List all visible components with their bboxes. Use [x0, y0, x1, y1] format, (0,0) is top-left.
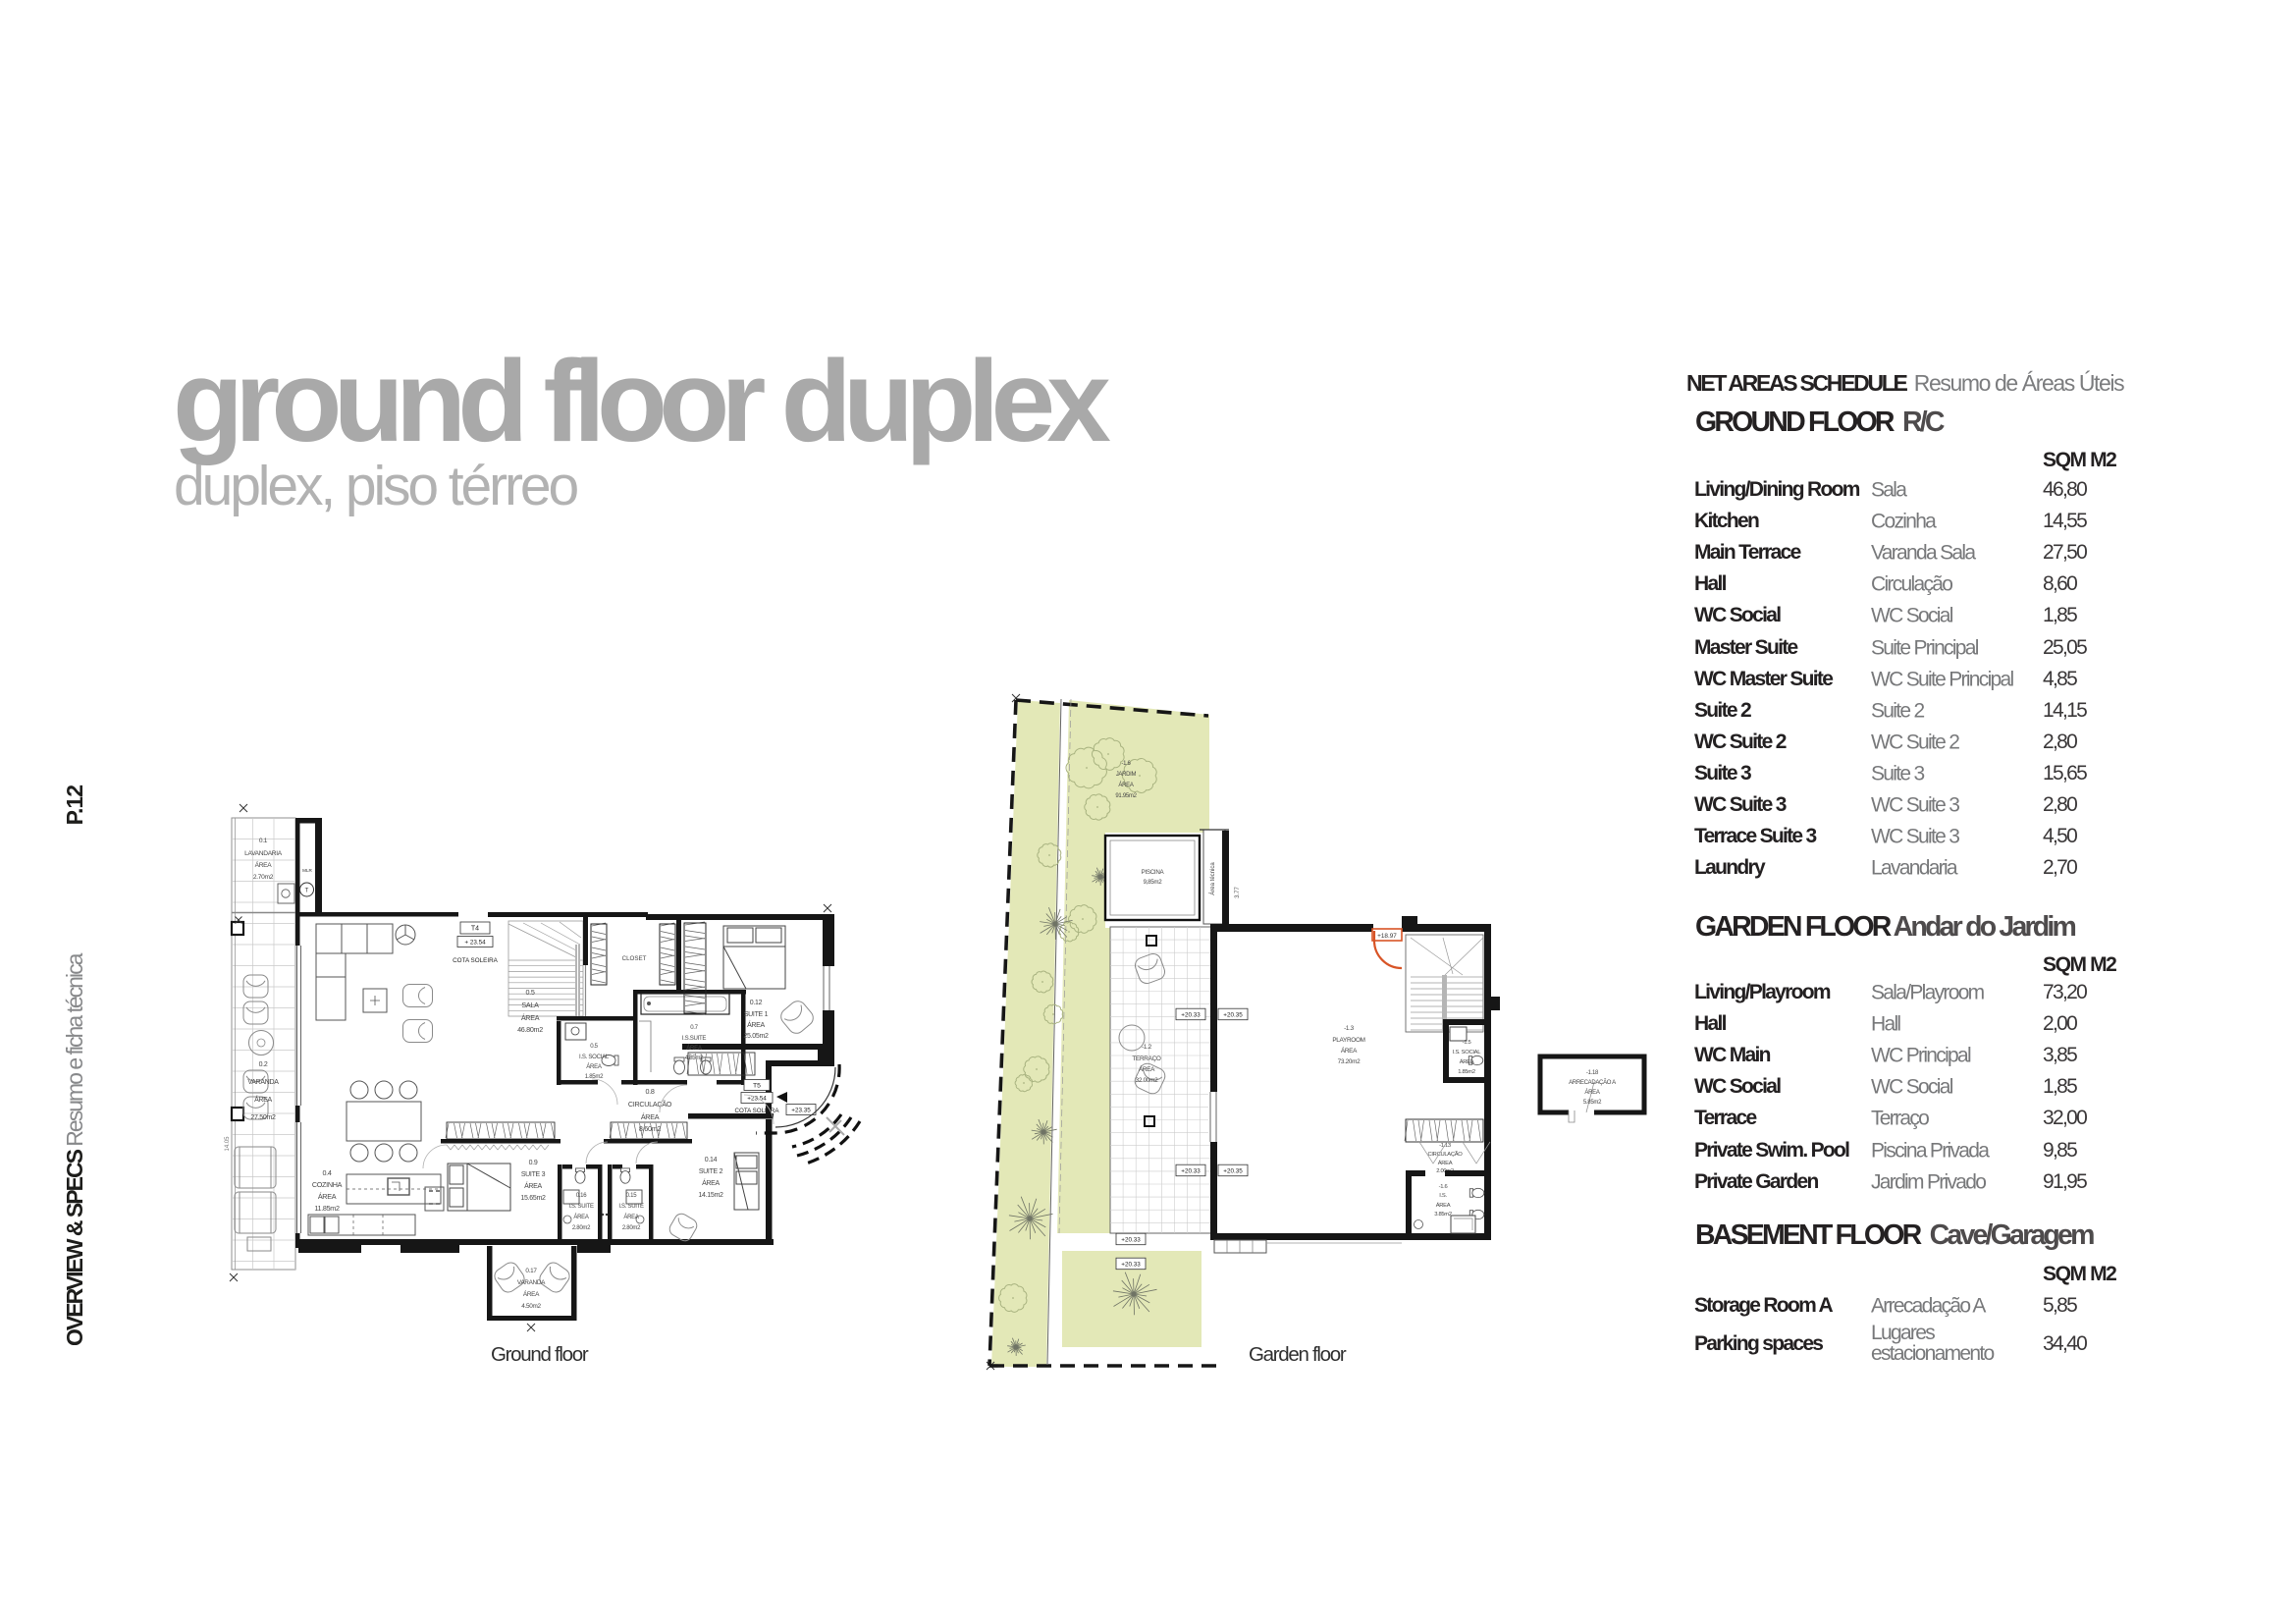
svg-text:14.05: 14.05	[225, 1136, 231, 1152]
svg-text:2.80m2: 2.80m2	[622, 1225, 641, 1231]
svg-text:ÁREA: ÁREA	[521, 1013, 540, 1022]
svg-text:ÁREA: ÁREA	[1139, 1064, 1155, 1073]
svg-text:11.85m2: 11.85m2	[314, 1204, 340, 1213]
svg-text:0.7: 0.7	[690, 1024, 698, 1031]
svg-text:JARDIM: JARDIM	[1116, 772, 1137, 778]
svg-text:ÁREA: ÁREA	[641, 1112, 660, 1121]
svg-text:+20.33: +20.33	[1181, 1167, 1201, 1174]
svg-text:PISCINA: PISCINA	[1142, 869, 1165, 876]
svg-text:-1.6: -1.6	[1121, 761, 1131, 767]
svg-text:1.85m2: 1.85m2	[1458, 1069, 1475, 1075]
svg-text:-1.3: -1.3	[1344, 1025, 1355, 1032]
svg-text:-1.18: -1.18	[1586, 1070, 1599, 1076]
svg-text:91.95m2: 91.95m2	[1115, 793, 1137, 799]
svg-text:0.14: 0.14	[705, 1157, 718, 1164]
svg-text:2.70m2: 2.70m2	[253, 874, 274, 881]
svg-text:SALA: SALA	[521, 1001, 539, 1009]
svg-text:9,85m2: 9,85m2	[1144, 879, 1163, 886]
svg-text:VARANDA: VARANDA	[247, 1079, 279, 1086]
svg-text:3.85m2: 3.85m2	[1434, 1212, 1452, 1218]
svg-text:T4: T4	[471, 925, 479, 932]
svg-text:I.S. SUITE: I.S. SUITE	[618, 1204, 644, 1210]
svg-text:COZINHA: COZINHA	[312, 1180, 343, 1189]
svg-text:ÁREA: ÁREA	[1460, 1058, 1474, 1065]
svg-text:+18.97: +18.97	[1377, 933, 1397, 940]
svg-text:ÁREA: ÁREA	[623, 1214, 638, 1220]
svg-text:ÁREA: ÁREA	[702, 1178, 720, 1187]
svg-text:ÁREA: ÁREA	[318, 1192, 337, 1201]
svg-text:ÁREA: ÁREA	[1584, 1089, 1599, 1096]
svg-text:PLAYROOM: PLAYROOM	[1332, 1037, 1364, 1044]
svg-text:46.80m2: 46.80m2	[517, 1025, 543, 1034]
svg-text:+23.54: +23.54	[747, 1095, 767, 1102]
svg-text:+23.35: +23.35	[791, 1107, 811, 1113]
svg-text:ÁREA: ÁREA	[523, 1289, 540, 1298]
svg-text:LAVANDARIA: LAVANDARIA	[244, 850, 283, 857]
svg-text:+20.35: +20.35	[1223, 1167, 1243, 1174]
svg-text:ÁREA: ÁREA	[1436, 1202, 1451, 1209]
svg-text:+20.35: +20.35	[1223, 1011, 1243, 1018]
svg-text:0.9: 0.9	[529, 1160, 538, 1166]
svg-text:I.S. SOCIAL: I.S. SOCIAL	[1453, 1050, 1481, 1056]
svg-text:+ 23.54: + 23.54	[464, 939, 486, 946]
svg-text:0.15: 0.15	[626, 1193, 637, 1199]
svg-text:ÁREA: ÁREA	[524, 1181, 542, 1190]
svg-text:0.4: 0.4	[322, 1168, 331, 1177]
svg-text:I.S. SOCIAL: I.S. SOCIAL	[579, 1054, 610, 1060]
svg-text:2.80m2: 2.80m2	[572, 1225, 591, 1231]
svg-text:MLR: MLR	[302, 868, 312, 873]
svg-text:-1.5: -1.5	[1463, 1040, 1471, 1046]
svg-text:ÁREA: ÁREA	[586, 1063, 603, 1070]
svg-text:ÁREA: ÁREA	[1118, 782, 1133, 788]
svg-text:14.15m2: 14.15m2	[698, 1192, 723, 1199]
svg-text:SUITE 2: SUITE 2	[699, 1168, 723, 1175]
svg-text:I.S.SUITE: I.S.SUITE	[682, 1035, 707, 1042]
svg-text:0.1: 0.1	[259, 838, 268, 844]
svg-text:+20.33: +20.33	[1121, 1236, 1141, 1243]
svg-text:5.85m2: 5.85m2	[1583, 1100, 1602, 1106]
svg-text:0.16: 0.16	[576, 1193, 587, 1199]
svg-text:I.S. SUITE: I.S. SUITE	[568, 1204, 594, 1210]
svg-text:ARRECADAÇÃO A: ARRECADAÇÃO A	[1569, 1079, 1616, 1086]
svg-text:ÁREA: ÁREA	[1438, 1160, 1453, 1166]
svg-text:15.65m2: 15.65m2	[520, 1195, 546, 1202]
svg-text:ÁREA: ÁREA	[747, 1020, 765, 1029]
svg-text:ÁREA: ÁREA	[254, 1095, 272, 1104]
svg-text:0.12: 0.12	[750, 1000, 763, 1006]
svg-text:ÁREA: ÁREA	[1341, 1046, 1358, 1055]
svg-text:ÁREA: ÁREA	[686, 1045, 703, 1052]
svg-text:3.77: 3.77	[1235, 887, 1241, 898]
svg-text:+20.33: +20.33	[1181, 1011, 1201, 1018]
svg-text:ÁREA: ÁREA	[255, 860, 273, 869]
svg-text:TERRAÇO: TERRAÇO	[1132, 1056, 1160, 1062]
svg-text:0.5: 0.5	[590, 1043, 598, 1050]
svg-text:-1.13: -1.13	[1439, 1143, 1451, 1149]
svg-text:CIRCULAÇÃO: CIRCULAÇÃO	[628, 1100, 672, 1109]
svg-text:CLOSET: CLOSET	[622, 955, 647, 962]
svg-text:T: T	[305, 889, 309, 894]
svg-text:ÁREA: ÁREA	[573, 1214, 588, 1220]
svg-text:SUITE 1: SUITE 1	[744, 1011, 769, 1018]
svg-text:0.17: 0.17	[525, 1268, 537, 1274]
svg-text:+20.33: +20.33	[1121, 1261, 1141, 1268]
svg-text:0.8: 0.8	[645, 1087, 654, 1096]
svg-text:27.50m2: 27.50m2	[250, 1114, 276, 1121]
svg-text:73.20m2: 73.20m2	[1338, 1058, 1362, 1065]
svg-text:COTA SOLEIRA: COTA SOLEIRA	[453, 957, 499, 964]
svg-text:COTA SOLEIRA: COTA SOLEIRA	[735, 1108, 780, 1114]
svg-text:VARANDA: VARANDA	[517, 1279, 546, 1286]
svg-text:0.2: 0.2	[259, 1061, 268, 1068]
svg-text:SUITE 3: SUITE 3	[521, 1171, 546, 1178]
svg-text:32.00m2: 32.00m2	[1136, 1077, 1159, 1084]
svg-text:4.50m2: 4.50m2	[521, 1303, 541, 1310]
svg-text:Área técnica: Área técnica	[1209, 862, 1216, 895]
svg-text:25.05m2: 25.05m2	[743, 1033, 769, 1040]
svg-text:0.5: 0.5	[525, 988, 534, 997]
svg-text:-1.2: -1.2	[1142, 1044, 1152, 1051]
svg-text:T5: T5	[753, 1082, 761, 1089]
svg-text:CIRCULAÇÃO: CIRCULAÇÃO	[1427, 1151, 1463, 1158]
svg-text:-1.6: -1.6	[1439, 1184, 1448, 1190]
svg-text:I.S.: I.S.	[1439, 1193, 1447, 1199]
